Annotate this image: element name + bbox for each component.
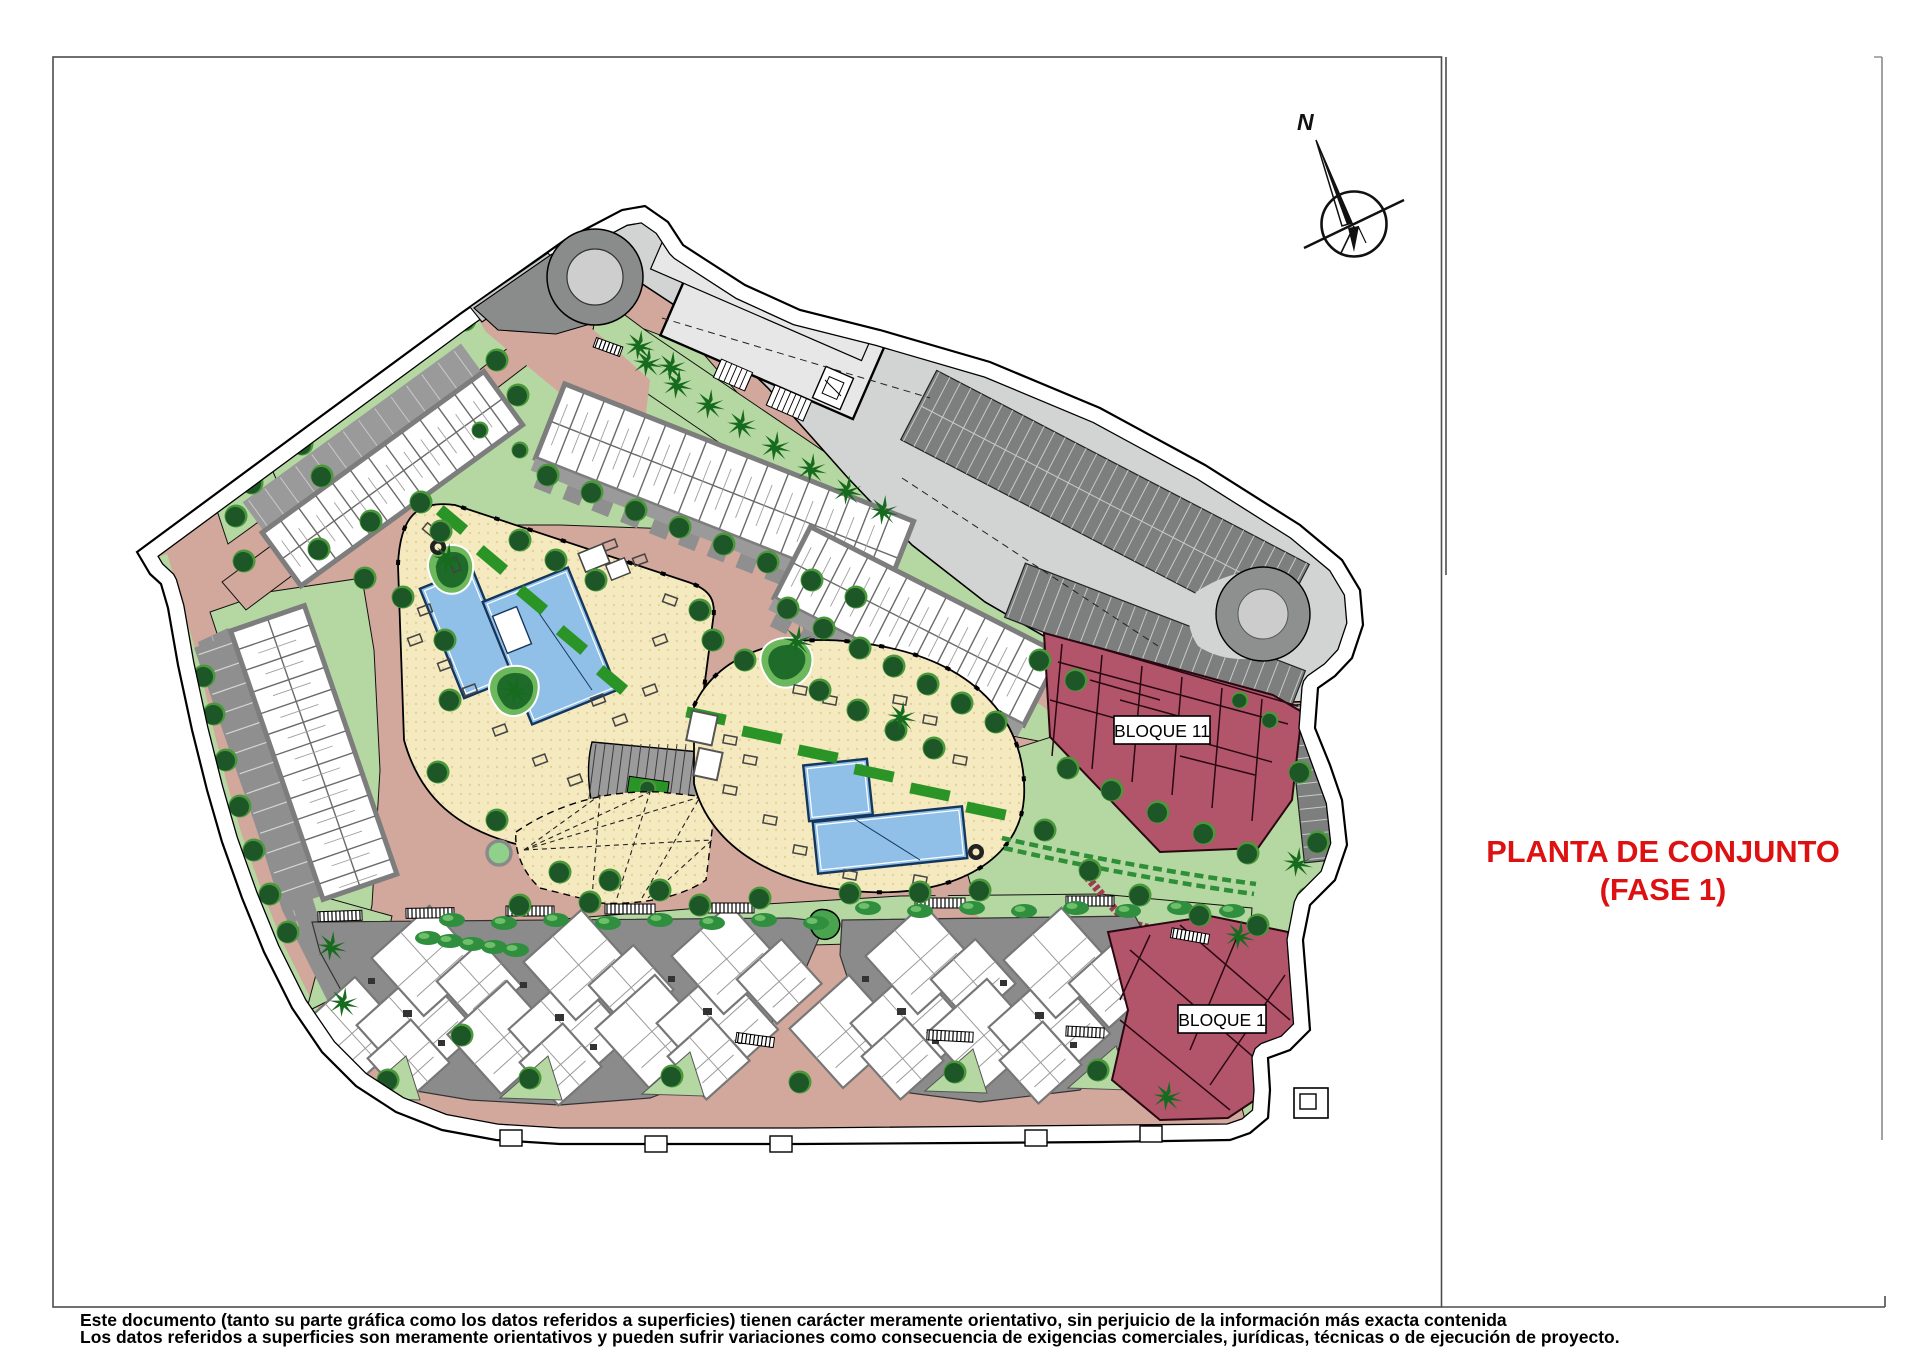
- svg-text:PLANTA DE CONJUNTO: PLANTA DE CONJUNTO: [1486, 834, 1840, 869]
- svg-text:(FASE 1): (FASE 1): [1600, 872, 1727, 907]
- svg-text:BLOQUE 1: BLOQUE 1: [1178, 1010, 1266, 1030]
- svg-text:BLOQUE 11: BLOQUE 11: [1114, 721, 1210, 741]
- svg-text:N: N: [1297, 109, 1314, 135]
- svg-text:Los datos referidos a superfic: Los datos referidos a superficies son me…: [80, 1327, 1620, 1347]
